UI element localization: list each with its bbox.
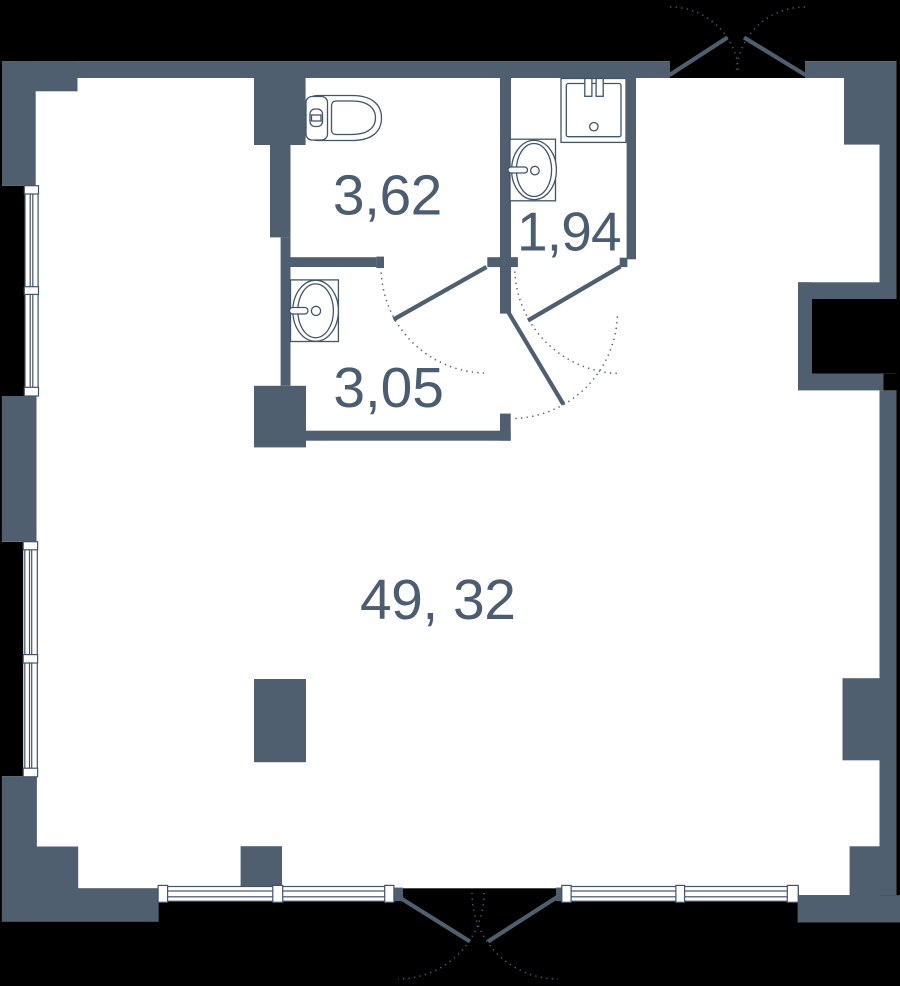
svg-text:49, 32: 49, 32: [360, 568, 515, 632]
svg-text:1,94: 1,94: [517, 201, 621, 263]
svg-text:3,62: 3,62: [333, 164, 442, 228]
svg-text:3,05: 3,05: [333, 356, 444, 420]
